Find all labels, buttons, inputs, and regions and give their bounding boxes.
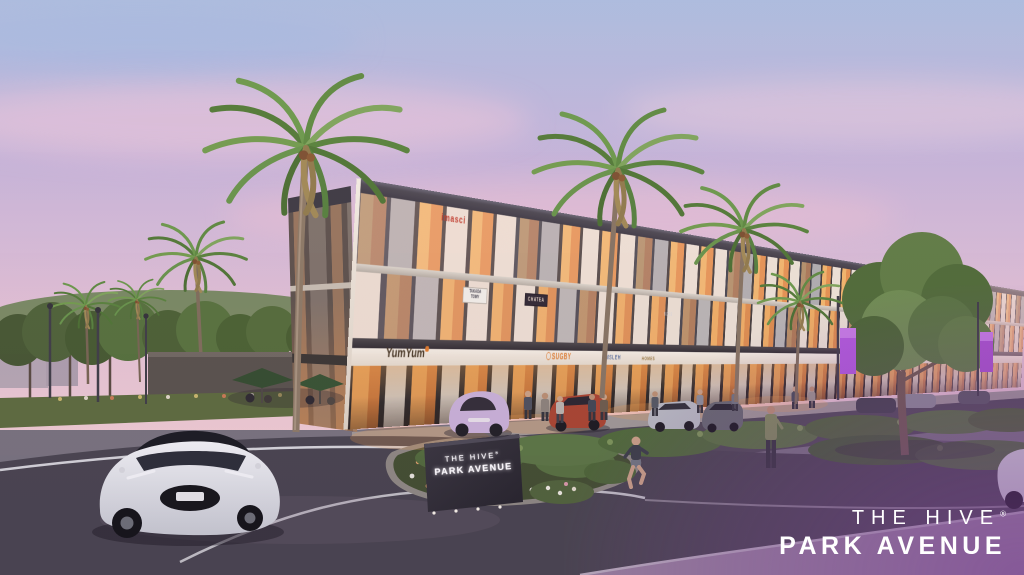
jogger bbox=[625, 437, 647, 488]
partial-car-right-edge bbox=[997, 449, 1024, 509]
monument-registered-mark: ® bbox=[495, 450, 500, 455]
logo-line1: THE HIVE bbox=[852, 507, 1000, 529]
render-scene: imasci TAKADA TOMY CHATEA BOSS YumYum SU… bbox=[0, 0, 1024, 575]
street-lamps bbox=[47, 296, 978, 404]
brand-logo: THE HIVE® PARK AVENUE bbox=[779, 507, 1006, 561]
foreground-palm-trees bbox=[205, 76, 842, 432]
foreground-layer bbox=[0, 0, 1024, 575]
logo-line2: PARK AVENUE bbox=[779, 532, 1006, 561]
man-with-phone bbox=[765, 406, 782, 468]
red-suv bbox=[546, 394, 610, 433]
vintage-car bbox=[444, 391, 512, 439]
distant-cars bbox=[856, 391, 990, 413]
logo-registered-mark: ® bbox=[1000, 509, 1006, 518]
white-sedan bbox=[92, 431, 284, 546]
cafe-terrace bbox=[228, 368, 344, 408]
street-tree-right bbox=[835, 232, 995, 460]
